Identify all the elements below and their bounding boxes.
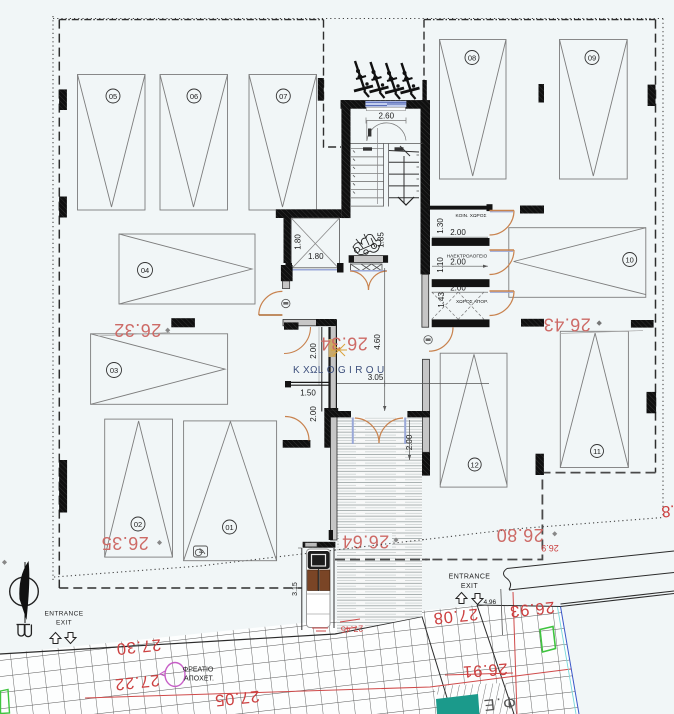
- svg-text:ΑΠΟΧΕΤ.: ΑΠΟΧΕΤ.: [184, 676, 214, 683]
- svg-text:09: 09: [588, 53, 596, 62]
- svg-text:10: 10: [626, 255, 634, 264]
- svg-text:05: 05: [109, 92, 117, 101]
- svg-text:12: 12: [471, 460, 479, 469]
- svg-text:02: 02: [134, 520, 142, 529]
- svg-text:26.35: 26.35: [101, 533, 149, 553]
- svg-text:06: 06: [190, 92, 198, 101]
- svg-text:03: 03: [110, 366, 118, 375]
- svg-text:2.00: 2.00: [450, 258, 466, 267]
- svg-text:2.00: 2.00: [450, 228, 466, 237]
- svg-text:08: 08: [468, 53, 476, 62]
- svg-text:1.43: 1.43: [437, 292, 446, 308]
- svg-text:1.30: 1.30: [436, 218, 445, 234]
- svg-text:27.45: 27.45: [340, 623, 363, 634]
- svg-text:26.80: 26.80: [496, 525, 544, 545]
- svg-text:Φ.Ε: Φ.Ε: [481, 693, 516, 713]
- svg-text:1.50: 1.50: [300, 389, 316, 398]
- svg-text:26.32: 26.32: [114, 320, 162, 340]
- svg-text:11: 11: [593, 447, 601, 456]
- svg-text:EXIT: EXIT: [56, 620, 72, 627]
- svg-text:26.91: 26.91: [462, 659, 508, 680]
- svg-text:3.15: 3.15: [292, 582, 299, 596]
- svg-text:1.85: 1.85: [377, 232, 386, 248]
- svg-text:1.10: 1.10: [436, 257, 445, 273]
- svg-text:26.43: 26.43: [543, 315, 591, 335]
- svg-text:2.00: 2.00: [309, 343, 318, 359]
- svg-text:04: 04: [141, 266, 149, 275]
- svg-text:01: 01: [225, 523, 233, 532]
- svg-text:2.00: 2.00: [450, 284, 466, 293]
- svg-text:2.60: 2.60: [379, 111, 395, 120]
- svg-text:K ΧΩL O G I R O U: K ΧΩL O G I R O U: [293, 365, 384, 376]
- svg-text:4.96: 4.96: [484, 599, 497, 606]
- svg-text:ENTRANCE: ENTRANCE: [449, 574, 491, 581]
- svg-text:ΧΩΡΟΣ ΑΠΟΡ.: ΧΩΡΟΣ ΑΠΟΡ.: [456, 299, 488, 305]
- svg-text:1.80: 1.80: [294, 234, 303, 250]
- svg-text:4.60: 4.60: [373, 334, 382, 350]
- svg-text:2.00: 2.00: [309, 406, 318, 422]
- svg-text:EXIT: EXIT: [461, 583, 478, 590]
- svg-text:ΦΡΕΑΤΙΟ: ΦΡΕΑΤΙΟ: [183, 667, 214, 674]
- svg-text:ENTRANCE: ENTRANCE: [45, 611, 84, 618]
- svg-text:26.64: 26.64: [342, 532, 390, 552]
- svg-text:ΚΟΙΝ. ΧΩΡΟΣ: ΚΟΙΝ. ΧΩΡΟΣ: [456, 213, 487, 219]
- svg-text:1.80: 1.80: [308, 252, 324, 261]
- svg-text:07: 07: [279, 92, 287, 101]
